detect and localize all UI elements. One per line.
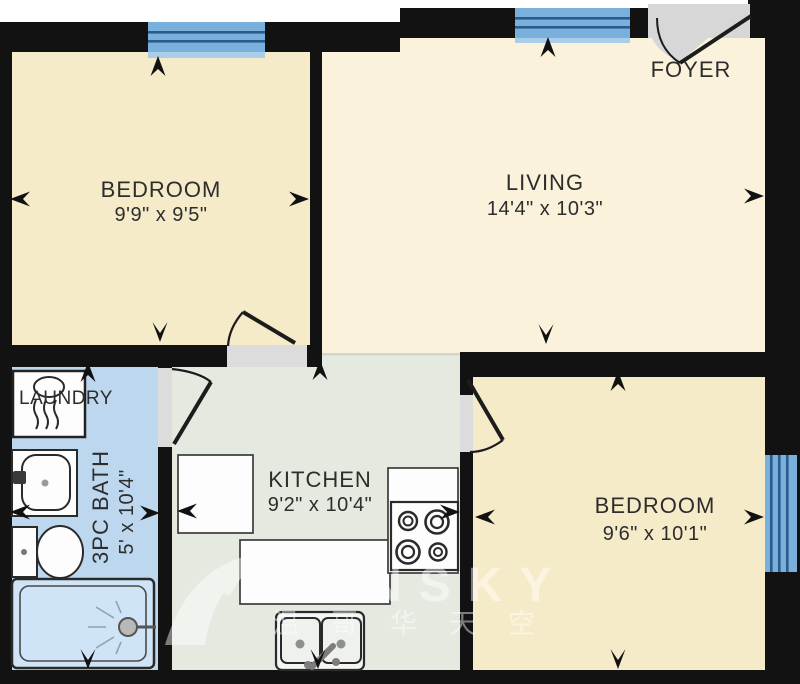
- sink-drain: [296, 640, 305, 649]
- window: [148, 22, 265, 52]
- room-label-bedroom2: BEDROOM: [595, 493, 716, 518]
- bedroom2-door-opening: [460, 395, 473, 452]
- living-floor: [322, 38, 765, 355]
- shower-drain-icon: [119, 618, 137, 636]
- room-dims-bath: 5' x 10'4": [116, 469, 138, 554]
- window-mullion: [515, 26, 630, 29]
- window-mullion: [148, 40, 265, 43]
- wall-right: [765, 0, 800, 684]
- floor-plan-page: BEDROOM 9'9" x 9'5" LIVING 14'4" x 10'3"…: [0, 0, 800, 684]
- room-label-bedroom1: BEDROOM: [101, 177, 222, 202]
- room-label-living: LIVING: [506, 170, 584, 195]
- room-dims-bath-group: 5' x 10'4": [116, 469, 138, 554]
- window-mullion: [786, 455, 789, 572]
- sink-drain: [337, 640, 346, 649]
- faucet-knob: [304, 661, 312, 669]
- window-mullion: [515, 17, 630, 20]
- window-mullion: [770, 455, 773, 572]
- room-dims-living: 14'4" x 10'3": [487, 198, 603, 220]
- window: [515, 8, 630, 38]
- window-mullion: [778, 455, 781, 572]
- wall-middle-a: [0, 345, 227, 367]
- room-dims-bedroom2: 9'6" x 10'1": [603, 523, 708, 545]
- room-label-bath: 3PC BATH: [88, 450, 113, 564]
- faucet-knob: [332, 658, 340, 666]
- room-dims-kitchen: 9'2" x 10'4": [268, 494, 373, 516]
- wall-bottom: [0, 670, 800, 684]
- bath-door-opening: [158, 368, 172, 447]
- room-label-foyer: FOYER: [651, 57, 732, 82]
- toilet-icon: [37, 526, 83, 578]
- watermark-cjk: 温哥华天空: [272, 609, 567, 639]
- entry-floor: [648, 4, 750, 38]
- sink-drain: [42, 480, 49, 487]
- wall-living-bottom: [460, 352, 765, 377]
- floor-plan-image: BEDROOM 9'9" x 9'5" LIVING 14'4" x 10'3"…: [0, 0, 800, 684]
- room-dims-bedroom1: 9'9" x 9'5": [115, 204, 208, 226]
- room-label-bath-group: 3PC BATH: [88, 450, 113, 564]
- kitchen-living-boundary: [322, 353, 460, 356]
- faucet-icon: [13, 471, 26, 484]
- window-mullion: [148, 31, 265, 34]
- wall-bedroom1-right: [310, 52, 322, 345]
- room-label-laundry: LAUNDRY: [19, 388, 113, 409]
- wall-bath-right-upper: [158, 345, 172, 368]
- watermark-brand: VANSKY: [270, 559, 568, 612]
- window-sill: [148, 52, 265, 58]
- room-label-kitchen: KITCHEN: [268, 467, 372, 492]
- bedroom1-door-opening: [227, 345, 307, 367]
- window: [765, 455, 797, 572]
- counter: [178, 455, 253, 533]
- toilet-flush: [21, 549, 27, 555]
- window-sill: [515, 38, 630, 43]
